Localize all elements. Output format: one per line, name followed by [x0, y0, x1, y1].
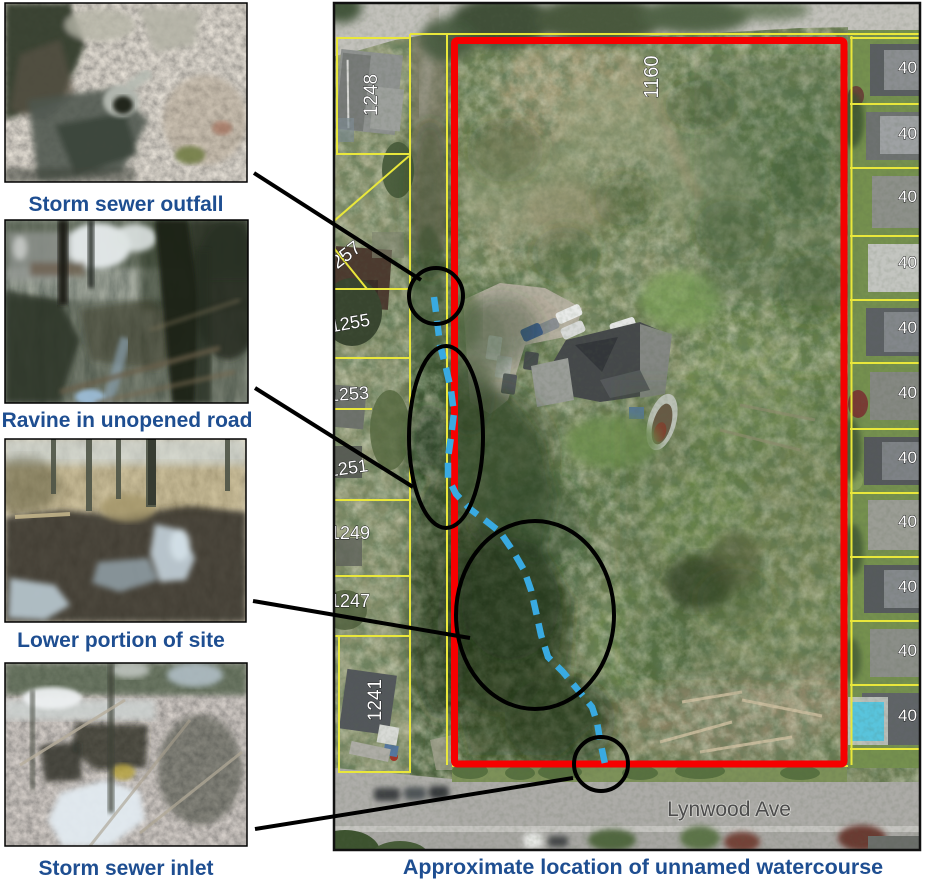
- svg-text:40: 40: [898, 253, 917, 272]
- svg-text:1249: 1249: [330, 523, 370, 543]
- svg-text:1247: 1247: [330, 591, 370, 611]
- svg-text:Approximate location of unname: Approximate location of unnamed watercou…: [403, 855, 883, 879]
- svg-text:40: 40: [898, 318, 917, 337]
- svg-text:Storm sewer outfall: Storm sewer outfall: [29, 193, 224, 216]
- svg-text:40: 40: [898, 641, 917, 660]
- svg-text:Storm sewer inlet: Storm sewer inlet: [38, 857, 213, 880]
- svg-text:40: 40: [898, 383, 917, 402]
- svg-text:1248: 1248: [361, 74, 382, 116]
- svg-text:40: 40: [898, 706, 917, 725]
- svg-text:Lower portion of site: Lower portion of site: [17, 629, 225, 652]
- svg-text:40: 40: [898, 512, 917, 531]
- svg-text:40: 40: [898, 187, 917, 206]
- svg-text:40: 40: [898, 448, 917, 467]
- svg-text:1160: 1160: [641, 55, 663, 98]
- svg-text:Ravine in unopened road: Ravine in unopened road: [2, 409, 253, 432]
- svg-text:Lynwood Ave: Lynwood Ave: [667, 798, 791, 821]
- svg-text:1241: 1241: [365, 679, 386, 721]
- svg-text:40: 40: [898, 577, 917, 596]
- svg-text:40: 40: [898, 58, 917, 77]
- svg-text:40: 40: [898, 124, 917, 143]
